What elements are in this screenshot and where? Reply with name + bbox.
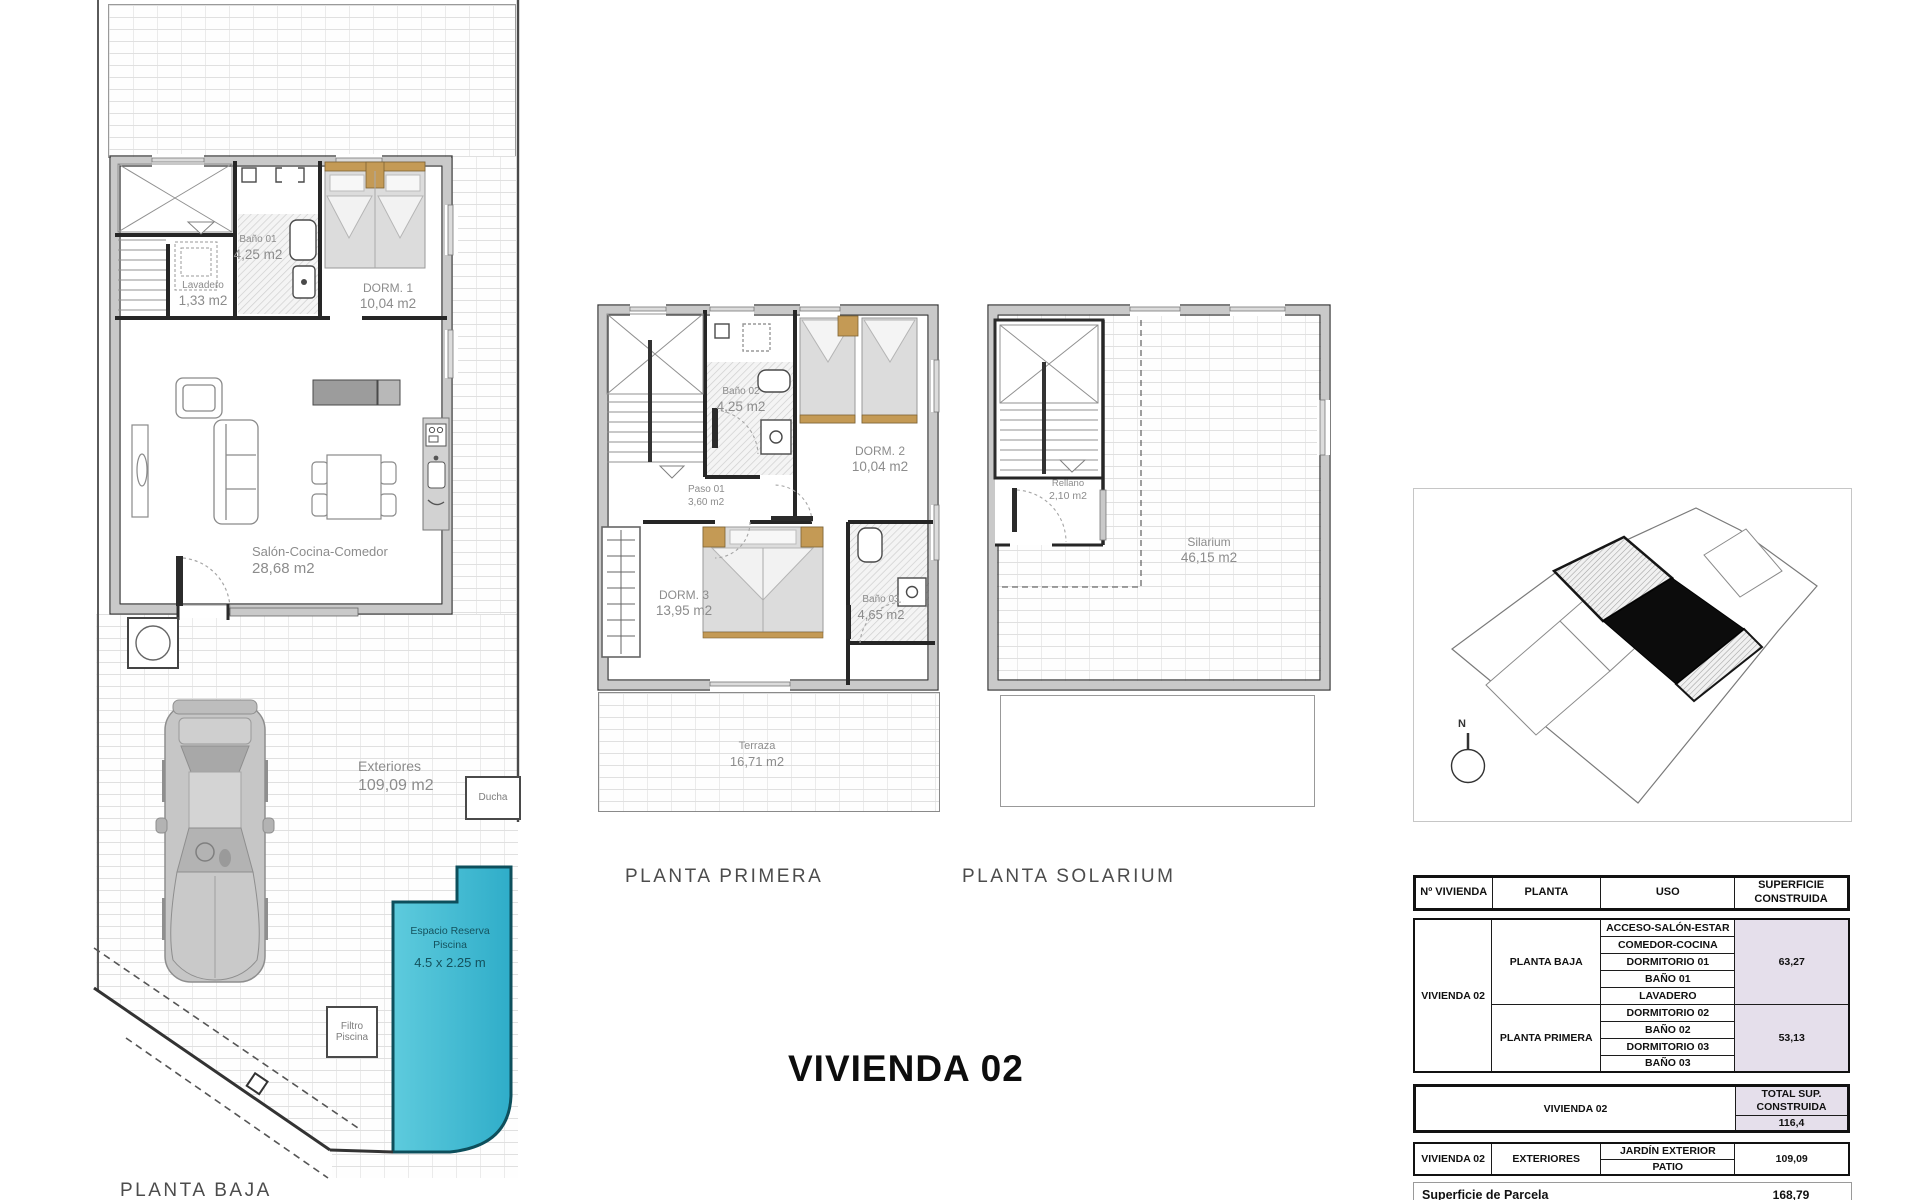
- room-label-silarium: Silarium 46,15 m2: [1162, 535, 1256, 567]
- sofa: [214, 420, 258, 524]
- table-row: VIVIENDA 02 TOTAL SUP. CONSTRUIDA: [1415, 1086, 1849, 1116]
- double-bed: [703, 527, 823, 638]
- north-label: N: [1458, 718, 1466, 730]
- stairs: [607, 314, 703, 478]
- wardrobe: [602, 527, 640, 657]
- twin-beds: [800, 316, 917, 423]
- parcela-footer: Superficie de Parcela 168,79: [1413, 1182, 1852, 1200]
- cell-exteriores: EXTERIORES: [1492, 1143, 1601, 1175]
- cell-uso: PATIO: [1601, 1159, 1735, 1175]
- header-n-vivienda: Nº VIVIENDA: [1415, 877, 1493, 910]
- room-label-lavadero: Lavadero 1,33 m2: [172, 280, 234, 309]
- plot-boundary: [98, 0, 518, 1002]
- door-leaf: [771, 516, 813, 521]
- planta-baja-drawing: [90, 0, 530, 1200]
- surfaces-table-total: VIVIENDA 02 TOTAL SUP. CONSTRUIDA 116,4: [1413, 1084, 1852, 1133]
- cell-planta-primera: PLANTA PRIMERA: [1492, 1004, 1601, 1072]
- header-superficie: SUPERFICIE CONSTRUIDA: [1735, 877, 1849, 910]
- cell-uso: DORMITORIO 01: [1601, 953, 1735, 970]
- site-map-drawing: [1414, 489, 1851, 821]
- room-label-paso: Paso 01 3,60 m2: [688, 484, 763, 509]
- cell-uso: BAÑO 01: [1601, 970, 1735, 987]
- site-location-map: [1413, 488, 1852, 822]
- parcela-label: Superficie de Parcela: [1422, 1188, 1548, 1200]
- room-label-rellano: Rellano 2,10 m2: [1036, 478, 1100, 503]
- room-label-dorm1: DORM. 1 10,04 m2: [346, 281, 430, 313]
- cell-total-label: TOTAL SUP. CONSTRUIDA: [1736, 1086, 1849, 1116]
- cell-superficie-ext: 109,09: [1735, 1143, 1849, 1175]
- table-row: VIVIENDA 02 EXTERIORES JARDÍN EXTERIOR 1…: [1414, 1143, 1849, 1159]
- cell-uso: LAVADERO: [1601, 987, 1735, 1004]
- cell-total-vivienda: VIVIENDA 02: [1415, 1086, 1736, 1132]
- cell-uso: JARDÍN EXTERIOR: [1601, 1143, 1735, 1159]
- cell-uso: DORMITORIO 02: [1601, 1004, 1735, 1021]
- pool: [393, 867, 511, 1152]
- room-label-bano02: Baño 02 4,25 m2: [700, 386, 782, 415]
- stairwell: [995, 320, 1103, 478]
- room-label-dorm3: DORM. 3 13,95 m2: [640, 588, 728, 620]
- table-row: VIVIENDA 02 PLANTA BAJA ACCESO-SALÓN-EST…: [1414, 919, 1849, 936]
- parcela-value: 168,79: [1735, 1188, 1847, 1200]
- room-label-dorm2: DORM. 2 10,04 m2: [836, 444, 924, 476]
- room-label-terraza: Terraza 16,71 m2: [712, 740, 802, 770]
- outdoor-washer: [128, 618, 178, 668]
- cell-uso: BAÑO 03: [1601, 1055, 1735, 1072]
- room-label-salon: Salón-Cocina-Comedor 28,68 m2: [252, 544, 402, 579]
- cell-superficie-primera: 53,13: [1735, 1004, 1849, 1072]
- surfaces-table-header: Nº VIVIENDA PLANTA USO SUPERFICIE CONSTR…: [1413, 875, 1852, 911]
- planta-solarium-drawing: [980, 300, 1335, 815]
- cell-ext-vivienda: VIVIENDA 02: [1414, 1143, 1492, 1175]
- north-arrow: [1452, 733, 1485, 783]
- header-uso: USO: [1601, 877, 1735, 910]
- header-planta: PLANTA: [1492, 877, 1601, 910]
- armchair: [176, 378, 222, 418]
- surfaces-table-exteriores: VIVIENDA 02 EXTERIORES JARDÍN EXTERIOR 1…: [1413, 1142, 1852, 1176]
- cell-total-value: 116,4: [1736, 1116, 1849, 1132]
- floorplan-sheet: Lavadero 1,33 m2 Baño 01 4,25 m2 DORM. 1…: [0, 0, 1920, 1200]
- page-title: VIVIENDA 02: [788, 1048, 1024, 1090]
- room-label-exteriores: Exteriores 109,09 m2: [358, 758, 453, 796]
- cell-vivienda: VIVIENDA 02: [1414, 919, 1492, 1072]
- cell-uso: COMEDOR-COCINA: [1601, 936, 1735, 953]
- cell-uso: DORMITORIO 03: [1601, 1038, 1735, 1055]
- cell-planta-baja: PLANTA BAJA: [1492, 919, 1601, 1004]
- plot-diagonal-boundary: [90, 948, 393, 1200]
- cell-uso: BAÑO 02: [1601, 1021, 1735, 1038]
- plan-title-primera: PLANTA PRIMERA: [625, 866, 823, 888]
- plan-title-baja: PLANTA BAJA: [120, 1180, 272, 1200]
- double-bed: [325, 162, 425, 268]
- ducha-box: Ducha: [465, 776, 521, 820]
- cell-uso: ACCESO-SALÓN-ESTAR: [1601, 919, 1735, 936]
- car: [156, 700, 274, 982]
- surfaces-table-body: VIVIENDA 02 PLANTA BAJA ACCESO-SALÓN-EST…: [1413, 918, 1852, 1073]
- room-label-bano01: Baño 01 4,25 m2: [226, 234, 290, 263]
- tv-unit: [132, 425, 148, 517]
- room-label-bano03: Baño 03 4,65 m2: [840, 594, 922, 623]
- pool-label: Espacio Reserva Piscina 4.5 x 2.25 m: [392, 924, 508, 972]
- cell-superficie-baja: 63,27: [1735, 919, 1849, 1004]
- filtro-piscina-box: Filtro Piscina: [326, 1006, 378, 1058]
- plan-title-solarium: PLANTA SOLARIUM: [962, 866, 1175, 888]
- dining-table: [312, 455, 396, 519]
- window: [1130, 303, 1330, 455]
